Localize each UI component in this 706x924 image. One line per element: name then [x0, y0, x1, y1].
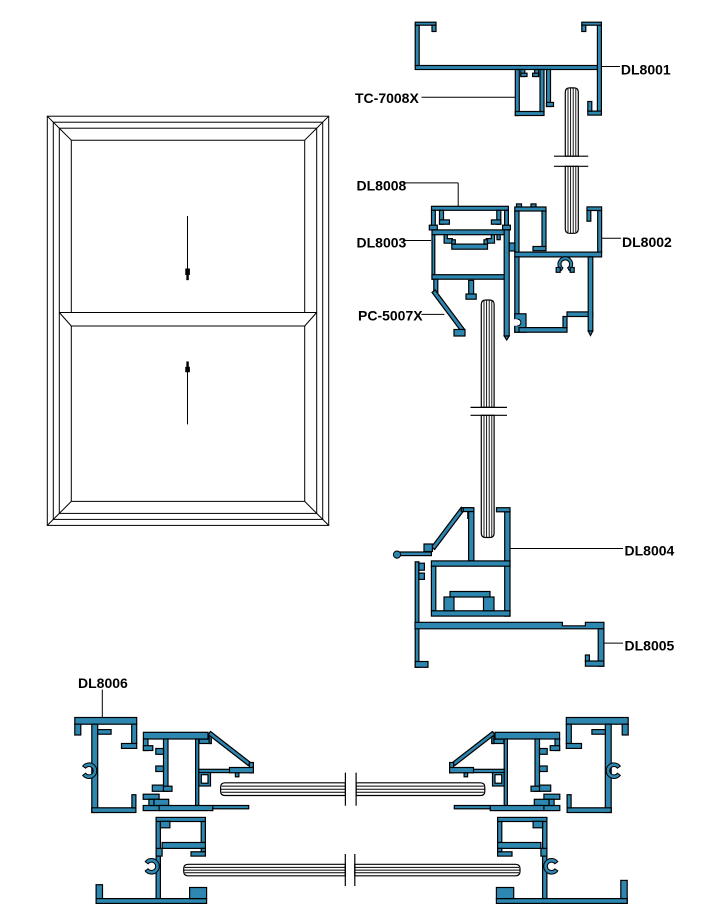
svg-text:DL8008: DL8008 — [357, 178, 407, 194]
svg-text:TC-7008X: TC-7008X — [355, 90, 419, 106]
svg-text:DL8003: DL8003 — [357, 235, 407, 251]
svg-text:DL8005: DL8005 — [625, 637, 675, 653]
svg-text:DL8002: DL8002 — [622, 234, 672, 250]
svg-text:DL8004: DL8004 — [625, 543, 675, 559]
svg-text:PC-5007X: PC-5007X — [358, 308, 423, 324]
svg-text:DL8001: DL8001 — [621, 62, 671, 78]
svg-text:DL8006: DL8006 — [78, 675, 128, 691]
